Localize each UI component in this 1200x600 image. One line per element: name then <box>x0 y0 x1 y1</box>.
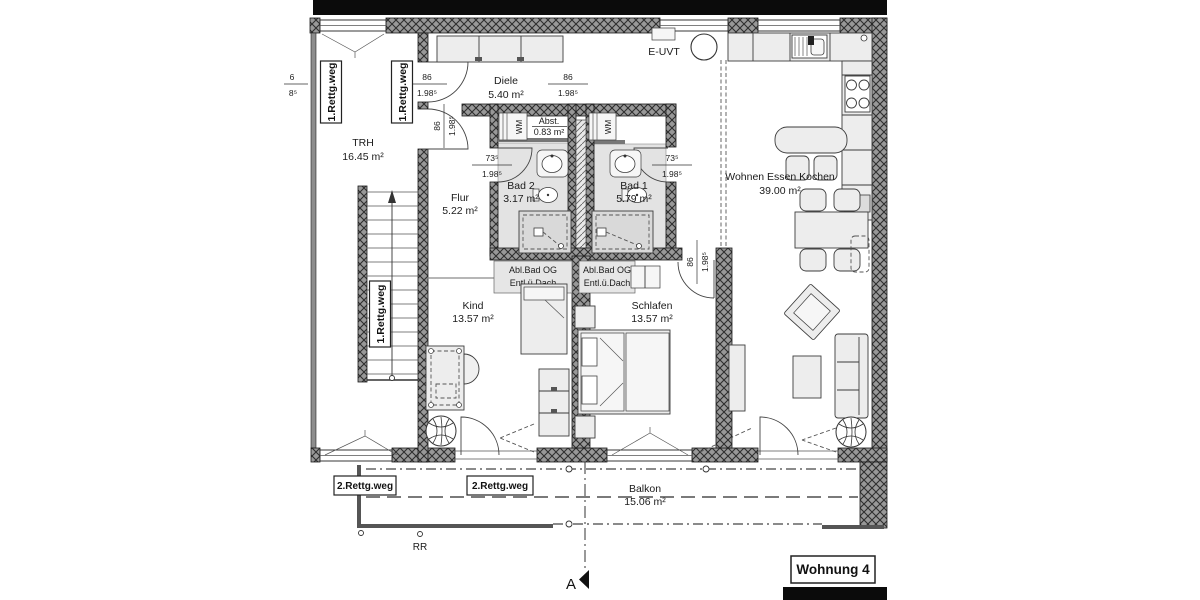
rainwater-pipe <box>418 532 423 537</box>
svg-text:86: 86 <box>422 72 432 82</box>
apartment-title-box: Wohnung 4 <box>791 556 875 583</box>
vent-label-1a: Abl.Bad OG <box>509 265 557 275</box>
room-area-bad1: 5.79 m² <box>616 193 652 205</box>
nightstand <box>575 306 595 328</box>
room-area-diele: 5.40 m² <box>488 89 524 101</box>
section-label: A <box>566 576 576 593</box>
room-label-flur: Flur <box>451 192 470 204</box>
tv-board <box>729 345 745 411</box>
site-boundary-bar-top <box>313 0 887 15</box>
room-area-trh: 16.45 m² <box>342 151 384 163</box>
escape-label-3: 1.Rettg.weg <box>370 281 391 347</box>
plant <box>426 416 456 446</box>
escape-label-2: 1.Rettg.weg <box>392 61 413 123</box>
room-label-balkon: Balkon <box>629 483 661 495</box>
svg-text:86: 86 <box>685 257 695 267</box>
svg-text:1.98⁵: 1.98⁵ <box>417 88 437 98</box>
svg-text:6: 6 <box>290 72 295 82</box>
svg-text:1.Rettg.weg: 1.Rettg.weg <box>326 63 338 122</box>
vent-label-2b: Entl.ü.Dach <box>584 278 631 288</box>
washing-machine-bad1: WM <box>589 113 616 140</box>
e-uvt-circle <box>691 34 717 60</box>
escape-label-4: 2.Rettg.weg <box>334 476 396 495</box>
nightstand <box>575 416 595 438</box>
escape-label-1: 1.Rettg.weg <box>321 61 342 123</box>
svg-text:2.Rettg.weg: 2.Rettg.weg <box>337 481 393 492</box>
room-label-bad2: Bad 2 <box>507 180 535 192</box>
stove <box>845 76 870 112</box>
vent-shaft <box>576 120 586 256</box>
room-area-balkon: 15.06 m² <box>624 496 666 508</box>
apartment-title: Wohnung 4 <box>796 562 870 577</box>
room-label-schlafen: Schlafen <box>632 300 673 312</box>
floor-plan-svg: WM WM Abl.Bad OG Entl.ü.Dach <box>0 0 1200 600</box>
svg-text:1.98⁵: 1.98⁵ <box>447 116 457 136</box>
sofa <box>835 334 868 418</box>
site-boundary-bar-bottom <box>783 587 887 600</box>
kind-bed <box>521 284 567 354</box>
kind-wardrobe <box>539 369 569 436</box>
vent-box-right: Abl.Bad OG Entl.ü.Dach <box>579 261 635 293</box>
room-label-wohnen: Wohnen Essen Kochen <box>725 171 835 183</box>
room-area-abst: 0.83 m² <box>534 127 565 137</box>
room-area-bad2: 3.17 m² <box>503 193 539 205</box>
wm-label: WM <box>604 120 613 135</box>
e-uvt-label: E-UVT <box>648 46 680 58</box>
svg-text:1.98⁵: 1.98⁵ <box>662 169 682 179</box>
rr-label: RR <box>413 542 427 553</box>
svg-text:73⁵: 73⁵ <box>486 153 499 163</box>
double-bed <box>578 330 670 414</box>
dim-clipped-left: 6 8⁵ <box>284 72 308 98</box>
room-label-bad1: Bad 1 <box>620 180 648 192</box>
svg-text:73⁵: 73⁵ <box>666 153 679 163</box>
svg-text:1.98⁵: 1.98⁵ <box>558 88 578 98</box>
hall-wardrobe <box>437 36 563 62</box>
svg-text:1.98⁵: 1.98⁵ <box>700 252 710 272</box>
svg-text:1.98⁵: 1.98⁵ <box>482 169 502 179</box>
room-label-trh: TRH <box>352 137 374 149</box>
svg-text:1.Rettg.weg: 1.Rettg.weg <box>375 285 387 344</box>
vent-label-2a: Abl.Bad OG <box>583 265 631 275</box>
wm-divider <box>590 140 625 144</box>
room-area-schlafen: 13.57 m² <box>631 313 673 325</box>
svg-text:86: 86 <box>432 121 442 131</box>
escape-label-5: 2.Rettg.weg <box>467 476 533 495</box>
plant <box>836 417 866 447</box>
dining-table <box>795 212 868 248</box>
room-area-kind: 13.57 m² <box>452 313 494 325</box>
desk <box>426 346 464 410</box>
room-label-abst: Abst. <box>539 116 560 126</box>
floor-plan-page: WM WM Abl.Bad OG Entl.ü.Dach <box>0 0 1200 600</box>
room-label-kind: Kind <box>462 300 483 312</box>
svg-text:8⁵: 8⁵ <box>289 88 297 98</box>
bedroom-cabinet <box>631 266 660 288</box>
room-label-diele: Diele <box>494 75 518 87</box>
svg-text:1.Rettg.weg: 1.Rettg.weg <box>397 63 409 122</box>
kitchen-island <box>775 127 847 153</box>
room-area-flur: 5.22 m² <box>442 205 478 217</box>
coffee-table <box>793 356 821 398</box>
svg-text:2.Rettg.weg: 2.Rettg.weg <box>472 481 528 492</box>
svg-text:86: 86 <box>563 72 573 82</box>
wm-label: WM <box>515 120 524 135</box>
washing-machine-abst: WM <box>499 113 527 140</box>
balcony-floor <box>357 462 887 528</box>
room-area-wohnen: 39.00 m² <box>759 185 801 197</box>
